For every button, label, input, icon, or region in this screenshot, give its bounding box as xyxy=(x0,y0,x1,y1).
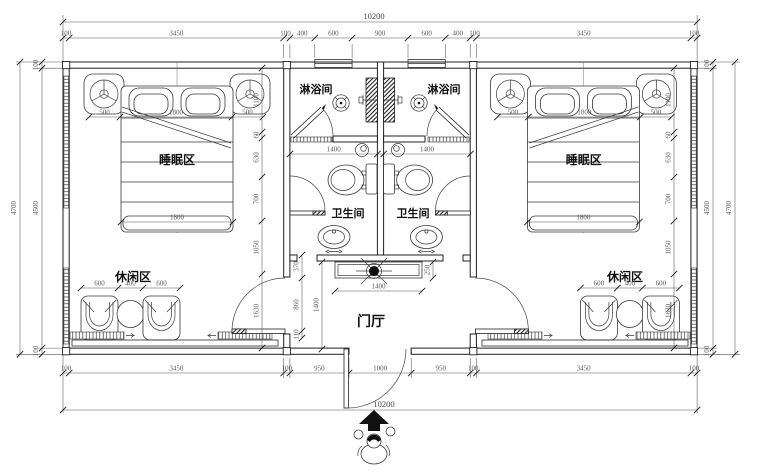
svg-text:110: 110 xyxy=(293,329,301,340)
dim-top-1: 3450 xyxy=(169,30,184,38)
dim-bot-6: 100 xyxy=(468,365,479,373)
room-left: 睡眠区 500 1800 500 1800 休闲区 600 400 600 xyxy=(70,62,285,351)
svg-text:630: 630 xyxy=(665,152,673,163)
dim-top-5: 900 xyxy=(375,30,386,38)
svg-text:600: 600 xyxy=(594,280,605,288)
label-shower-left: 淋浴间 xyxy=(300,82,333,96)
svg-text:250: 250 xyxy=(424,264,432,275)
dim-chairs-right: 600 400 600 xyxy=(577,280,682,292)
svg-text:1050: 1050 xyxy=(665,240,673,255)
toilet-paper-holder xyxy=(392,144,405,157)
dim-chairs-left: 600 400 600 xyxy=(78,280,183,292)
svg-text:630: 630 xyxy=(253,152,261,163)
svg-text:860: 860 xyxy=(293,299,301,310)
svg-text:500: 500 xyxy=(651,109,662,117)
window-right-wall-upper xyxy=(692,76,697,208)
dim-top-6: 600 xyxy=(421,30,432,38)
svg-text:500: 500 xyxy=(242,109,253,117)
dim-right-wall-bot: 100 xyxy=(703,345,711,356)
dim-cabinet-width: 1400 xyxy=(332,283,425,295)
svg-text:700: 700 xyxy=(665,193,673,204)
svg-text:1630: 1630 xyxy=(665,304,673,319)
label-shower-right: 淋浴间 xyxy=(428,82,461,96)
svg-text:500: 500 xyxy=(99,109,110,117)
dim-bot-5: 950 xyxy=(435,365,446,373)
center-partition-wall xyxy=(377,62,383,258)
floor-plan: 10200 100 3450 100 400 600 900 600 400 1… xyxy=(0,0,760,473)
dim-top-0: 100 xyxy=(61,30,72,38)
entry-person-figure xyxy=(354,410,395,464)
armchair xyxy=(580,296,617,340)
toilet-paper-holder xyxy=(356,144,369,157)
dim-right-inner: 4500 xyxy=(703,201,711,216)
door-room-right xyxy=(475,278,528,334)
svg-text:500: 500 xyxy=(508,109,519,117)
dim-left-wall-bot: 100 xyxy=(32,345,40,356)
dimensions-right: 100 4500 100 4700 xyxy=(694,59,740,358)
svg-text:400: 400 xyxy=(125,280,136,288)
svg-text:60: 60 xyxy=(665,131,673,139)
svg-text:600: 600 xyxy=(156,280,167,288)
dim-left-wall-top: 100 xyxy=(32,59,40,70)
dim-top-9: 3450 xyxy=(577,30,592,38)
dim-cabinet-depth: 250 xyxy=(424,259,437,281)
dim-bot-1: 3450 xyxy=(169,365,184,373)
dim-top-7: 400 xyxy=(452,30,463,38)
svg-text:700: 700 xyxy=(253,193,261,204)
svg-text:1100: 1100 xyxy=(253,93,261,107)
label-sleep-right: 睡眠区 xyxy=(566,152,602,167)
dim-left-outer: 4700 xyxy=(10,201,18,216)
window-left-wall-lower xyxy=(64,268,69,344)
toilet xyxy=(328,164,377,195)
dim-bot-8: 100 xyxy=(689,365,700,373)
entry-arrow-icon xyxy=(359,410,389,431)
svg-text:1100: 1100 xyxy=(665,93,673,107)
dim-top-10: 100 xyxy=(689,30,700,38)
sink xyxy=(410,226,442,254)
round-table xyxy=(117,301,144,328)
dim-top-3: 400 xyxy=(297,30,308,38)
svg-text:1800: 1800 xyxy=(576,214,591,222)
dimensions-left: 4700 100 4500 100 xyxy=(10,59,66,358)
svg-text:1800: 1800 xyxy=(169,109,184,117)
svg-text:600: 600 xyxy=(94,280,105,288)
armchair xyxy=(143,296,180,340)
sink xyxy=(318,226,350,254)
svg-text:600: 600 xyxy=(656,280,667,288)
room-right: 睡眠区 500 1800 500 1800 休闲区 600 400 600 xyxy=(475,62,690,351)
dimensions-bottom: 100 3450 100 950 1000 950 100 3450 100 1… xyxy=(60,354,701,413)
toilet xyxy=(384,164,433,195)
svg-text:400: 400 xyxy=(625,280,636,288)
dim-bot-4: 1000 xyxy=(373,365,388,373)
dim-overall-top: 10200 xyxy=(363,11,384,21)
label-bath-left: 卫生间 xyxy=(332,206,365,220)
dim-bot-2: 100 xyxy=(282,365,293,373)
window-left-wall-upper xyxy=(64,76,69,208)
window-right-wall-lower xyxy=(692,268,697,344)
dim-left-inner: 4500 xyxy=(32,201,40,216)
door-bath-left xyxy=(290,176,325,215)
svg-text:1800: 1800 xyxy=(577,109,592,117)
svg-text:60: 60 xyxy=(253,131,261,139)
round-table xyxy=(616,301,643,328)
svg-text:1400: 1400 xyxy=(313,298,321,313)
dim-top-2: 100 xyxy=(280,30,291,38)
label-foyer: 门厅 xyxy=(357,313,385,330)
dimensions-top: 10200 100 3450 100 400 600 900 600 400 1… xyxy=(60,11,701,62)
floor-drain xyxy=(333,95,349,111)
svg-text:370: 370 xyxy=(293,261,301,272)
dim-bot-3: 950 xyxy=(314,365,325,373)
dim-bot-0: 100 xyxy=(61,365,72,373)
dim-top-8: 100 xyxy=(469,30,480,38)
dim-bot-7: 3450 xyxy=(577,365,592,373)
dim-foyer-height: 1400 xyxy=(313,259,326,352)
svg-text:1630: 1630 xyxy=(253,304,261,319)
svg-text:1400: 1400 xyxy=(420,146,435,154)
dim-top-4: 600 xyxy=(328,30,339,38)
door-bath-right xyxy=(435,176,470,215)
label-bath-right: 卫生间 xyxy=(397,206,430,220)
shower-door-left xyxy=(291,104,333,142)
floor-plan-canvas: 10200 100 3450 100 400 600 900 600 400 1… xyxy=(0,0,760,473)
label-sleep-left: 睡眠区 xyxy=(159,152,195,167)
svg-text:1400: 1400 xyxy=(327,146,342,154)
dim-foyer-chain: 370 860 110 xyxy=(293,252,306,341)
floor-drain xyxy=(411,95,427,111)
shower-door-right xyxy=(427,104,469,142)
dim-right-outer: 4700 xyxy=(725,201,733,216)
svg-text:1800: 1800 xyxy=(170,214,185,222)
dim-right-wall-top: 100 xyxy=(703,59,711,70)
svg-text:1400: 1400 xyxy=(372,283,387,291)
svg-text:1050: 1050 xyxy=(253,240,261,255)
